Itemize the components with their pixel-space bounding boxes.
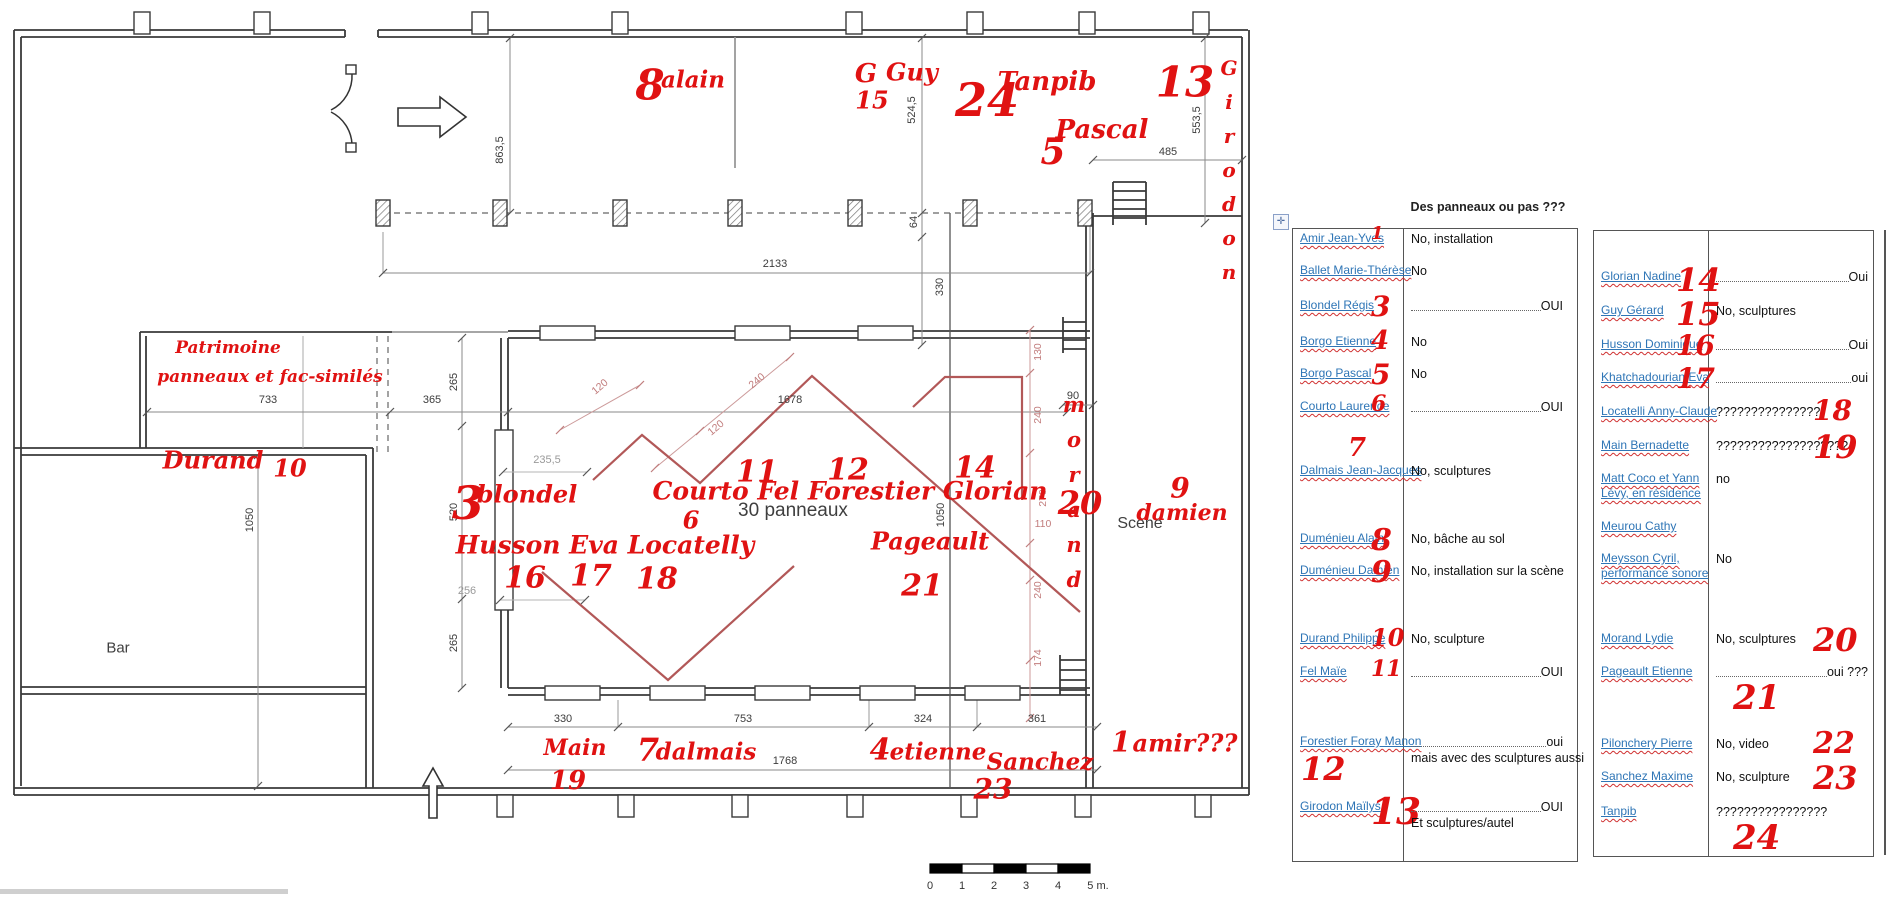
dimension-label: 1050 bbox=[244, 508, 256, 532]
table1-artist-name[interactable]: Dalmais Jean-Jacques bbox=[1300, 463, 1421, 478]
handwritten-number: 14 bbox=[954, 451, 996, 486]
table1-artist-name[interactable]: Borgo Pascal bbox=[1300, 366, 1371, 381]
table2-artist-name[interactable]: Meysson Cyril, performance sonore bbox=[1601, 551, 1708, 581]
handwritten-name: amir??? bbox=[1133, 729, 1238, 758]
dimension-label-red: 130 bbox=[1032, 343, 1044, 361]
dimension-label: 2133 bbox=[763, 258, 787, 270]
dimension-label: 524,5 bbox=[906, 96, 918, 124]
table1-answer: No bbox=[1411, 334, 1427, 350]
table2-answer: oui bbox=[1716, 370, 1868, 386]
handwritten-number: 12 bbox=[827, 453, 869, 488]
dimension-label-red: 174 bbox=[1032, 649, 1044, 667]
table2-artist-name[interactable]: Main Bernadette bbox=[1601, 438, 1689, 453]
table-move-handle-icon[interactable]: ✛ bbox=[1273, 214, 1289, 230]
table2-answer: Oui bbox=[1716, 337, 1868, 353]
table2-answer: No bbox=[1716, 551, 1732, 567]
dimension-label: 330 bbox=[934, 278, 946, 296]
table2-answer: ??????????????? bbox=[1716, 404, 1820, 420]
bottom-gray-strip bbox=[0, 889, 288, 894]
table2-artist-name[interactable]: Tanpib bbox=[1601, 804, 1636, 819]
handwritten-number: 6 bbox=[683, 506, 700, 535]
table1-answer: No, installation sur la scène bbox=[1411, 563, 1564, 579]
handwritten-name: panneaux et fac-similés bbox=[157, 367, 383, 387]
handwritten-number: 5 bbox=[1371, 358, 1390, 391]
scale-bar-label: 0 bbox=[927, 880, 933, 892]
handwritten-number: 5 bbox=[1040, 131, 1065, 173]
handwritten-number: 24 bbox=[1733, 818, 1780, 858]
table1-column-divider bbox=[1403, 229, 1404, 861]
handwritten-number: 4 bbox=[1371, 326, 1389, 356]
dimension-label: 1678 bbox=[778, 394, 802, 406]
dimension-label-gray: 256 bbox=[458, 585, 476, 597]
table1-answer: OUIEt sculptures/autel bbox=[1411, 799, 1563, 831]
dimension-label: 753 bbox=[734, 713, 752, 725]
scale-bar-label: 3 bbox=[1023, 880, 1029, 892]
dimension-label: 1768 bbox=[773, 755, 797, 767]
handwritten-number: 19 bbox=[1813, 428, 1858, 466]
table1-answer: No, sculpture bbox=[1411, 631, 1485, 647]
table2-answer: no bbox=[1716, 471, 1730, 487]
handwritten-name: blondel bbox=[477, 480, 578, 509]
handwritten-name: etienne bbox=[890, 739, 987, 766]
dimension-label-gray: 235,5 bbox=[533, 454, 561, 466]
dimension-label: 330 bbox=[554, 713, 572, 725]
handwritten-number: 11 bbox=[1371, 656, 1402, 682]
handwritten-number: 7 bbox=[637, 731, 659, 769]
table2-answer: No, sculptures bbox=[1716, 303, 1796, 319]
floor-plan-document: 863,52133524,564330553,54857333651678105… bbox=[0, 0, 1887, 897]
handwritten-number: 3 bbox=[452, 476, 484, 530]
table1-answer: OUI bbox=[1411, 298, 1563, 314]
table2-artist-name[interactable]: Glorian Nadine bbox=[1601, 269, 1681, 284]
table2-artist-name[interactable]: Locatelli Anny-Claude bbox=[1601, 404, 1717, 419]
table1-answer: OUI bbox=[1411, 399, 1563, 415]
handwritten-number: 24 bbox=[955, 73, 1019, 127]
table1-answer: No bbox=[1411, 263, 1427, 279]
handwritten-name: Durand bbox=[163, 446, 264, 475]
handwritten-number: 23 bbox=[974, 773, 1013, 806]
handwritten-name: Pascal bbox=[1056, 115, 1149, 145]
handwritten-number: 18 bbox=[1813, 394, 1852, 427]
handwritten-number: 1 bbox=[1371, 223, 1384, 244]
handwritten-name: Sanchez bbox=[987, 749, 1094, 776]
panel-table-1: Amir Jean-Yves1No, installationBallet Ma… bbox=[1292, 228, 1578, 862]
dimension-label: 553,5 bbox=[1191, 106, 1203, 134]
table2-artist-name[interactable]: Matt Coco et Yann Lévy, en résidence bbox=[1601, 471, 1701, 501]
handwritten-number: 21 bbox=[1733, 678, 1780, 718]
handwritten-number: 23 bbox=[1813, 759, 1858, 797]
scale-bar-label: 4 bbox=[1055, 880, 1061, 892]
table1-answer: No bbox=[1411, 366, 1427, 382]
dimension-label: 361 bbox=[1028, 713, 1046, 725]
dimension-label: 64 bbox=[908, 216, 920, 228]
handwritten-number: 9 bbox=[1170, 472, 1189, 505]
plan-text: Bar bbox=[106, 640, 129, 657]
handwritten-name: dalmais bbox=[656, 739, 757, 766]
table2-answer: No, sculpture bbox=[1716, 769, 1790, 785]
handwritten-number: 16 bbox=[1676, 329, 1715, 362]
handwritten-number: 18 bbox=[636, 562, 678, 597]
scale-bar-label: 5 m. bbox=[1087, 880, 1108, 892]
handwritten-number: 14 bbox=[1676, 261, 1721, 299]
handwritten-name: Girodon bbox=[1217, 56, 1241, 294]
handwritten-number: 9 bbox=[1371, 555, 1392, 590]
handwritten-name: Patrimoine bbox=[175, 338, 281, 358]
table2-artist-name[interactable]: Pilonchery Pierre bbox=[1601, 736, 1692, 751]
handwritten-name: Guy bbox=[886, 58, 938, 87]
scale-bar-label: 1 bbox=[959, 880, 965, 892]
table1-answer: ouimais avec des sculptures aussi bbox=[1411, 734, 1584, 766]
handwritten-name: Main bbox=[544, 735, 607, 761]
handwritten-number: 17 bbox=[570, 559, 612, 594]
table2-artist-name[interactable]: Guy Gérard bbox=[1601, 303, 1664, 318]
table2-answer: No, sculptures bbox=[1716, 631, 1796, 647]
table2-artist-name[interactable]: Pageault Etienne bbox=[1601, 664, 1692, 679]
handwritten-number: 10 bbox=[273, 454, 306, 483]
dimension-label: 365 bbox=[423, 394, 441, 406]
handwritten-number: 15 bbox=[855, 86, 888, 115]
handwritten-name: G bbox=[855, 59, 877, 89]
handwritten-number: 4 bbox=[870, 733, 891, 768]
table2-answer: No, video bbox=[1716, 736, 1769, 752]
panels-question-title: Des panneaux ou pas ??? bbox=[1398, 200, 1578, 214]
dimension-label: 863,5 bbox=[494, 136, 506, 164]
dimension-label: 733 bbox=[259, 394, 277, 406]
table1-answer: No, installation bbox=[1411, 231, 1493, 247]
handwritten-number: 15 bbox=[1676, 295, 1721, 333]
handwritten-name: Husson Eva Locatelly bbox=[456, 531, 755, 560]
dimension-label-red: 240 bbox=[1032, 406, 1044, 424]
handwritten-number: 21 bbox=[901, 569, 943, 604]
table1-artist-name[interactable]: Blondel Régis bbox=[1300, 298, 1374, 313]
handwritten-number: 19 bbox=[550, 766, 586, 796]
handwritten-name: alain bbox=[661, 67, 725, 94]
handwritten-number: 11 bbox=[736, 455, 778, 490]
handwritten-number: 8 bbox=[1371, 523, 1392, 558]
dimension-label-red: 110 bbox=[1035, 518, 1052, 530]
handwritten-number: 20 bbox=[1813, 621, 1858, 659]
handwritten-number: 13 bbox=[1156, 58, 1214, 107]
table2-artist-name[interactable]: Sanchez Maxime bbox=[1601, 769, 1693, 784]
handwritten-number: 10 bbox=[1371, 623, 1404, 652]
dimension-label: 485 bbox=[1159, 146, 1177, 158]
handwritten-number: 20 bbox=[1058, 484, 1103, 522]
scale-bar-label: 2 bbox=[991, 880, 997, 892]
table2-artist-name[interactable]: Morand Lydie bbox=[1601, 631, 1673, 646]
table1-artist-name[interactable]: Girodon Maïlys bbox=[1300, 799, 1381, 814]
handwritten-number: 22 bbox=[1813, 726, 1855, 761]
handwritten-number: 3 bbox=[1371, 290, 1390, 323]
dimension-label: 1050 bbox=[935, 503, 947, 527]
table1-artist-name[interactable]: Forestier Foray Manon bbox=[1300, 734, 1421, 749]
panel-table-2: Glorian Nadine14OuiGuy Gérard15No, sculp… bbox=[1593, 230, 1874, 857]
cropped-table-edge bbox=[1884, 230, 1886, 855]
table2-answer: Oui bbox=[1716, 269, 1868, 285]
dimension-label: 265 bbox=[448, 373, 460, 391]
handwritten-name: Pageault bbox=[871, 527, 989, 556]
handwritten-number: 7 bbox=[1348, 433, 1366, 463]
handwritten-number: 12 bbox=[1301, 750, 1346, 788]
table1-artist-name[interactable]: Fel Maïe bbox=[1300, 664, 1347, 679]
dimension-label-red: 240 bbox=[1032, 581, 1044, 599]
dimension-label: 324 bbox=[914, 713, 932, 725]
table1-answer: No, bâche au sol bbox=[1411, 531, 1505, 547]
handwritten-number: 16 bbox=[504, 561, 546, 596]
handwritten-number: 17 bbox=[1676, 362, 1715, 395]
handwritten-number: 1 bbox=[1111, 726, 1130, 759]
handwritten-number: 6 bbox=[1371, 391, 1386, 417]
table1-answer: OUI bbox=[1411, 664, 1563, 680]
table1-artist-name[interactable]: Ballet Marie-Thérèse bbox=[1300, 263, 1411, 278]
table1-answer: No, sculptures bbox=[1411, 463, 1491, 479]
table1-artist-name[interactable]: Borgo Etienne bbox=[1300, 334, 1376, 349]
handwritten-number: 8 bbox=[635, 61, 664, 110]
dimension-label: 265 bbox=[448, 634, 460, 652]
table2-artist-name[interactable]: Meurou Cathy bbox=[1601, 519, 1676, 534]
